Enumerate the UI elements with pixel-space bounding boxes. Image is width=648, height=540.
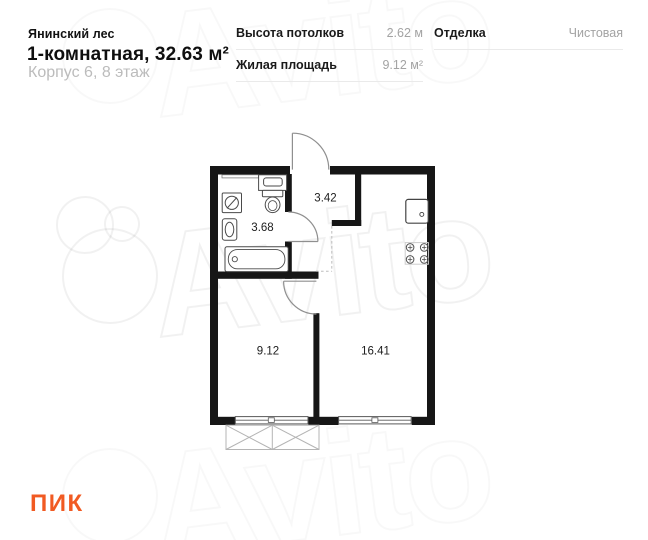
separator <box>236 81 423 82</box>
spec-ceiling-height: Высота потолков 2.62 м <box>236 26 423 42</box>
spec-label: Отделка <box>434 26 486 40</box>
pik-developer-logo: ПИК <box>30 490 84 518</box>
spec-value: 9.12 м² <box>382 58 423 72</box>
room-area-label-bathroom: 3.68 <box>251 222 273 234</box>
washing-machine-icon <box>222 193 241 213</box>
toilet-icon <box>262 190 282 212</box>
entrance-door <box>292 133 328 169</box>
window-room <box>235 417 308 424</box>
kitchen-sink-icon <box>406 199 428 223</box>
spec-value: Чистовая <box>569 26 623 40</box>
spec-label: Жилая площадь <box>236 58 337 72</box>
bathtub-icon <box>225 247 288 272</box>
spec-living-area: Жилая площадь 9.12 м² <box>236 58 423 74</box>
room-area-label-bedroom: 9.12 <box>257 346 279 358</box>
zone-dashed-boundary <box>316 226 332 271</box>
separator <box>236 49 423 50</box>
bathroom-shelf <box>222 175 259 178</box>
watermark-logo-circle-icon <box>53 193 118 258</box>
room-area-label-hallway: 3.42 <box>314 193 336 205</box>
bathroom-sink-icon <box>259 175 287 191</box>
room-door <box>284 281 317 314</box>
watermark-logo-circle-icon <box>57 223 164 330</box>
floorplan-listing-image: Avito Avito Avito Янинский лес 1-комнатн… <box>0 0 648 540</box>
separator <box>434 49 623 50</box>
spec-value: 2.62 м <box>387 26 423 40</box>
stove-icon <box>405 243 428 265</box>
floor-plan: 3.68 3.42 9.12 16.41 <box>170 105 480 460</box>
bathroom-door <box>288 212 318 242</box>
window-kitchen <box>339 417 412 424</box>
walls <box>210 166 435 425</box>
washbasin-icon <box>222 219 237 241</box>
spec-finishing: Отделка Чистовая <box>434 26 623 42</box>
spec-label: Высота потолков <box>236 26 344 40</box>
balcony <box>226 425 319 449</box>
watermark-logo-circle-icon <box>102 204 142 244</box>
building-floor-subtitle: Корпус 6, 8 этаж <box>28 64 150 82</box>
apartment-title: 1-комнатная, 32.63 м² <box>27 44 229 66</box>
room-area-label-kitchen: 16.41 <box>361 346 390 358</box>
complex-name: Янинский лес <box>28 27 115 41</box>
